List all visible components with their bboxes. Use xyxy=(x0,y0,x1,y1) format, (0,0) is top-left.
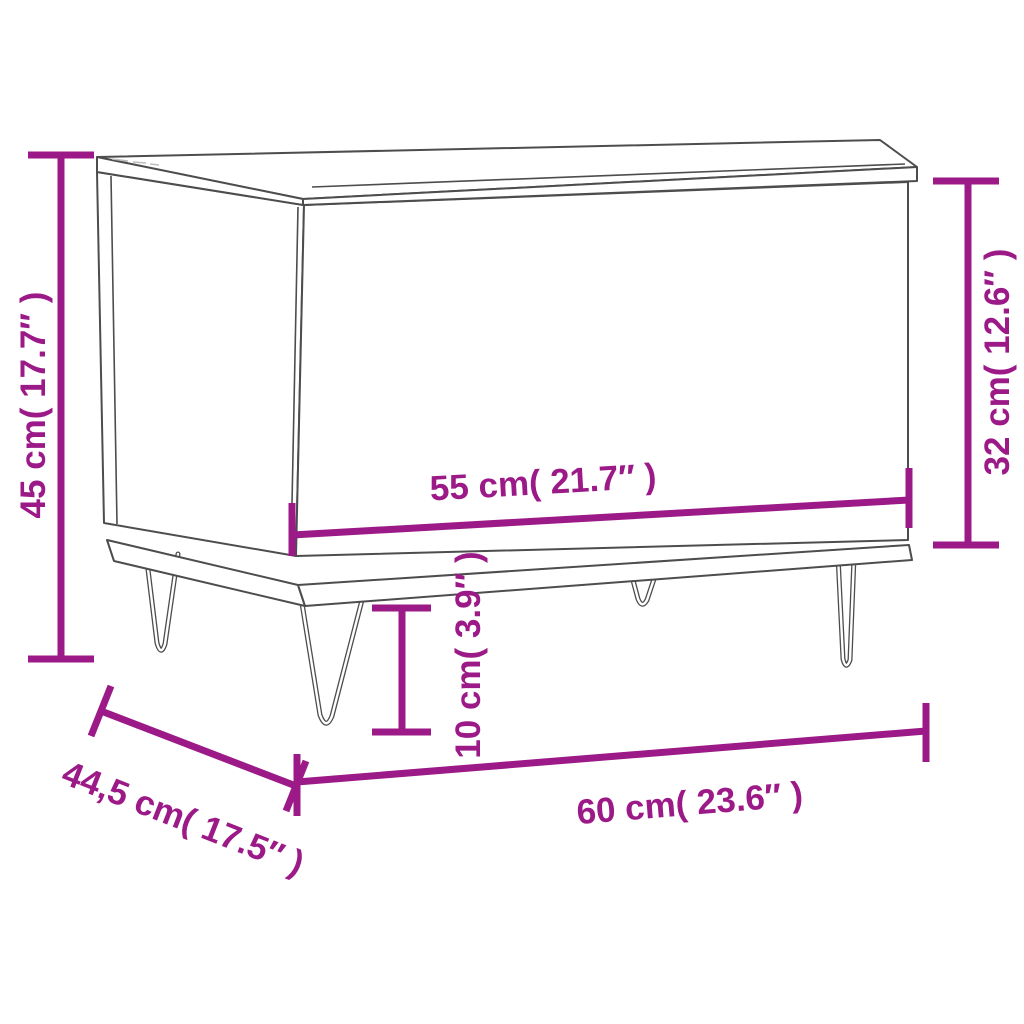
hairpin-leg-front-right xyxy=(838,556,854,665)
carcass-front-panel xyxy=(296,182,908,556)
label-overall-width: 60 cm( 23.6″ ) xyxy=(575,775,804,832)
label-overall-height: 45 cm( 17.7″ ) xyxy=(14,292,53,519)
coffee-table-diagram-svg: 45 cm( 17.7″ ) 32 cm( 12.6″ ) 55 cm( 21.… xyxy=(0,0,1024,1024)
diagram-page: { "title": "Coffee table dimension diagr… xyxy=(0,0,1024,1024)
dimension-line-leg-height xyxy=(372,608,431,732)
table-drawing xyxy=(97,140,917,723)
dimension-diagram: 45 cm( 17.7″ ) 32 cm( 12.6″ ) 55 cm( 21.… xyxy=(0,0,1024,1024)
label-leg-height: 10 cm( 3.9″ ) xyxy=(449,551,488,758)
hairpin-leg-front-left xyxy=(301,597,362,723)
label-top-section-height: 32 cm( 12.6″ ) xyxy=(978,249,1017,476)
carcass-left-panel xyxy=(97,172,304,556)
